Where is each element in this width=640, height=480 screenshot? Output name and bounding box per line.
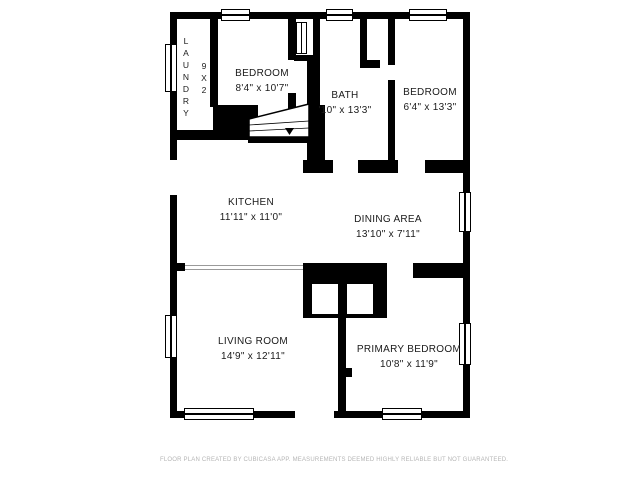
room-dims: 13'10" x 7'11" — [354, 227, 422, 242]
room-dims: 6'4" x 13'3" — [403, 100, 457, 115]
room-label-bedroom-top-left: BEDROOM 8'4" x 10'7" — [235, 66, 289, 96]
opening-line — [185, 269, 303, 270]
wall-primary-left — [338, 313, 346, 418]
room-dims: '10" x 13'3" — [319, 103, 372, 118]
wall-mid-band — [303, 160, 333, 173]
room-dims: 11'11" x 11'0" — [220, 210, 282, 225]
room-name: DINING AREA — [354, 212, 422, 227]
room-name: PRIMARY BEDROOM — [357, 342, 461, 357]
wall-outer-left — [170, 195, 177, 315]
room-dims-laundry: 9X2 — [199, 61, 208, 97]
window-icon — [382, 408, 422, 420]
room-label-dining-area: DINING AREA 13'10" x 7'11" — [354, 212, 422, 242]
closet-compartment — [347, 284, 373, 314]
room-dims: 8'4" x 10'7" — [235, 81, 289, 96]
room-label-kitchen: KITCHEN 11'11" x 11'0" — [220, 195, 282, 225]
room-name: BEDROOM — [403, 85, 457, 100]
room-label-laundry: LAUNDRY — [181, 36, 190, 120]
window-icon — [165, 315, 177, 358]
wall-laundry-right — [210, 19, 218, 107]
room-label-bedroom-top-right: BEDROOM 6'4" x 13'3" — [403, 85, 457, 115]
room-label-bath: BATH '10" x 13'3" — [319, 88, 372, 118]
wall-living-top-nub — [177, 263, 185, 271]
opening-line — [185, 265, 303, 266]
room-dims: 14'9" x 12'11" — [218, 349, 288, 364]
wall-bath-right-upper — [388, 19, 395, 65]
window-icon — [221, 9, 250, 21]
wall-bath-nook-horizontal — [360, 60, 380, 68]
wall-bedroom1-right — [288, 19, 296, 60]
window-icon — [165, 44, 177, 92]
wall-outer-left — [170, 358, 177, 418]
room-name: KITCHEN — [220, 195, 282, 210]
window-icon — [409, 9, 447, 21]
wall-outer-right — [463, 12, 470, 192]
window-icon — [459, 192, 471, 232]
disclaimer-text: FLOOR PLAN CREATED BY CUBICASA APP. MEAS… — [160, 457, 480, 463]
wall-bath-left-upper — [313, 19, 320, 55]
wall-outer-left — [170, 92, 177, 160]
window-icon — [326, 9, 353, 21]
wall-mid-band — [425, 160, 463, 173]
closet-compartment — [312, 284, 338, 314]
closet-door-icon — [296, 22, 307, 54]
wall-outer-left — [170, 12, 177, 44]
window-icon — [184, 408, 254, 420]
room-label-primary-bedroom: PRIMARY BEDROOM 10'8" x 11'9" — [357, 342, 461, 372]
floor-plan: LAUNDRY 9X2 BEDROOM 8'4" x 10'7" BATH '1… — [0, 0, 640, 480]
room-label-living-room: LIVING ROOM 14'9" x 12'11" — [218, 334, 288, 364]
wall-mid-band — [358, 160, 398, 173]
wall-primary-left-nub — [338, 368, 352, 377]
room-name: BATH — [319, 88, 372, 103]
room-name: LIVING ROOM — [218, 334, 288, 349]
stairs-icon — [248, 98, 310, 138]
wall-outer-right — [463, 232, 470, 323]
room-dims: 10'8" x 11'9" — [357, 357, 461, 372]
wall-primary-top — [413, 263, 463, 278]
room-name: BEDROOM — [235, 66, 289, 81]
